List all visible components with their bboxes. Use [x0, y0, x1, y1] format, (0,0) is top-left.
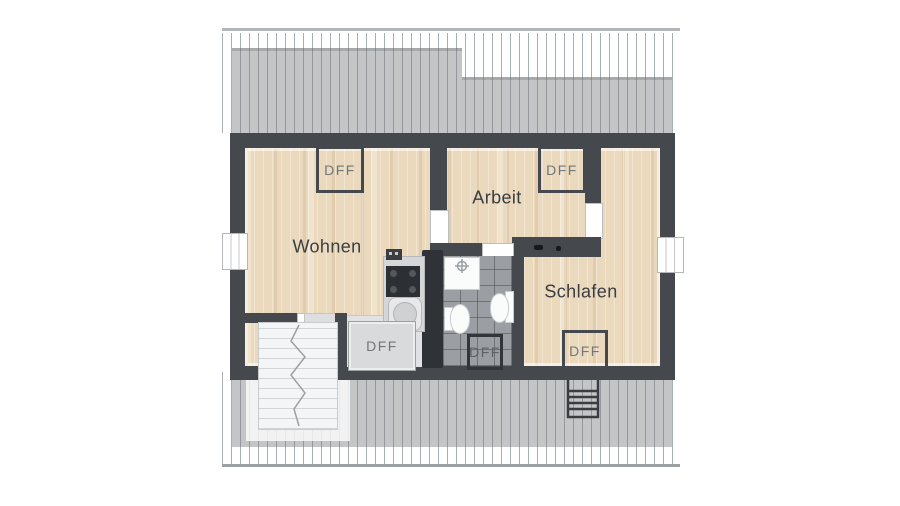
roof-surface-top-right [462, 77, 672, 136]
window-right [657, 237, 684, 273]
skylight-bad-label: DFF [469, 344, 501, 360]
skylight-dormer-flur: DFF [349, 322, 415, 370]
stair-walkline-icon [259, 323, 337, 429]
skylight-schlafen-label: DFF [569, 343, 601, 359]
staircase [258, 322, 338, 430]
skylight-schlafen: DFF [562, 330, 608, 372]
roof-surface-top-left [232, 48, 462, 136]
wall-switch-dot-2 [556, 246, 561, 251]
kitchen-control-box [386, 249, 402, 260]
toilet-right-bowl [490, 293, 509, 323]
skylight-arbeit: DFF [538, 146, 586, 193]
exterior-wall-bottom-left [230, 366, 258, 380]
cooktop [386, 266, 420, 297]
wall-switch-dot-1 [534, 245, 543, 250]
wall-bad-north [438, 243, 482, 256]
skylight-dormer-label: DFF [366, 338, 398, 354]
shower-tray [444, 257, 480, 290]
skylight-arbeit-label: DFF [546, 162, 578, 178]
wall-column-kitchen-bad [422, 250, 443, 368]
skylight-wohnen-label: DFF [324, 162, 356, 178]
room-label-arbeit: Arbeit [472, 188, 521, 209]
ladder-icon [565, 378, 601, 420]
exterior-wall-top [230, 133, 675, 148]
toilet-left-bowl [450, 304, 470, 334]
skylight-wohnen: DFF [316, 146, 364, 193]
door-arbeit-schlafen [585, 203, 603, 239]
roof-ridge-line [222, 28, 680, 33]
window-left [222, 233, 248, 270]
skylight-bad: DFF [467, 334, 503, 370]
room-label-wohnen: Wohnen [292, 237, 361, 258]
wall-arbeit-schlafen [585, 148, 601, 203]
shower-faucet-icon [445, 258, 479, 289]
door-wohnen-arbeit [430, 210, 449, 245]
floor-plan-canvas: DFF DFF DFF DFF DFF Wohnen Arbeit Schlaf… [0, 0, 900, 506]
wall-wohnen-arbeit [430, 148, 447, 210]
roof-hatch-top [222, 28, 680, 133]
wall-schlafen-north [512, 237, 601, 257]
room-label-schlafen: Schlafen [544, 282, 617, 303]
